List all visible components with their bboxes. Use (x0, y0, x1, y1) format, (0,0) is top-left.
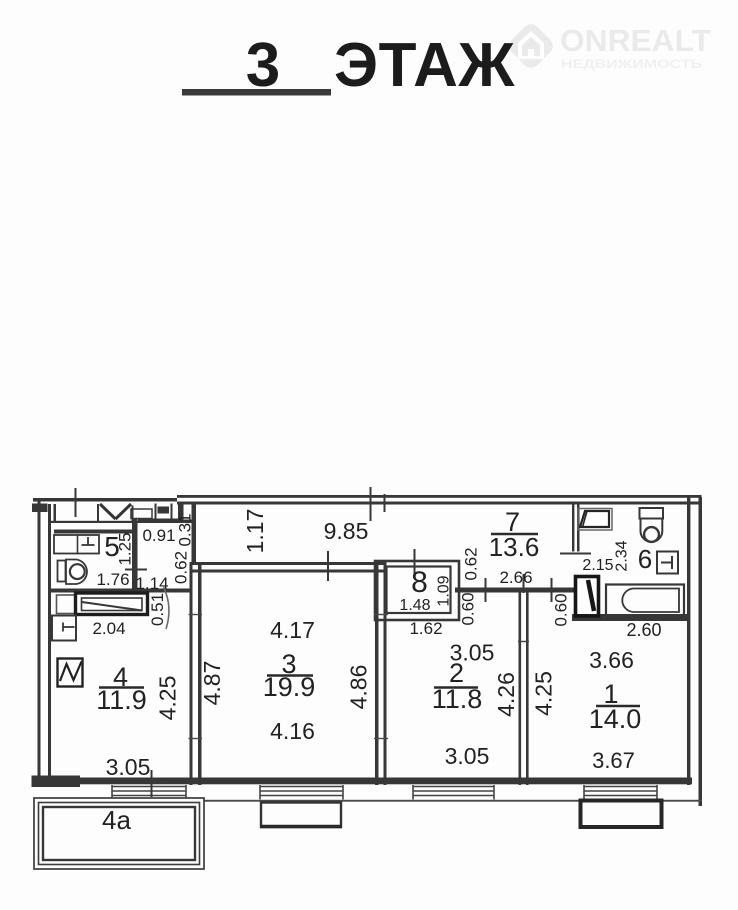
svg-text:8: 8 (411, 566, 428, 599)
svg-text:3.05: 3.05 (445, 743, 490, 769)
svg-text:4.87: 4.87 (199, 661, 225, 706)
svg-text:2.34: 2.34 (614, 540, 631, 571)
svg-text:1.09: 1.09 (436, 575, 453, 606)
svg-text:2.15: 2.15 (582, 557, 613, 574)
svg-text:ЭТАЖ: ЭТАЖ (334, 31, 515, 100)
svg-text:3.05: 3.05 (106, 754, 151, 780)
svg-text:1.62: 1.62 (409, 619, 442, 638)
svg-text:9.85: 9.85 (324, 518, 369, 544)
svg-text:0.60: 0.60 (459, 592, 478, 625)
svg-text:1.76: 1.76 (96, 570, 129, 589)
svg-text:14.0: 14.0 (589, 704, 642, 734)
svg-text:0.60: 0.60 (552, 593, 571, 626)
svg-text:2.60: 2.60 (626, 620, 661, 640)
svg-text:1.17: 1.17 (242, 509, 268, 554)
svg-text:4.25: 4.25 (155, 676, 181, 721)
svg-text:2.66: 2.66 (499, 568, 532, 587)
svg-text:ONREALT: ONREALT (560, 23, 711, 58)
svg-text:4.16: 4.16 (270, 718, 315, 744)
svg-text:4.86: 4.86 (346, 665, 372, 710)
svg-text:НЕДВИЖИМОСТЬ: НЕДВИЖИМОСТЬ (561, 59, 702, 71)
svg-text:13.6: 13.6 (489, 532, 540, 562)
svg-text:1.48: 1.48 (399, 597, 430, 614)
svg-text:4a: 4a (102, 805, 131, 835)
svg-text:4.26: 4.26 (493, 672, 519, 717)
svg-text:0.62: 0.62 (462, 547, 481, 580)
svg-text:1.25: 1.25 (116, 532, 135, 565)
svg-text:4.25: 4.25 (531, 671, 557, 716)
svg-text:0.51: 0.51 (148, 593, 167, 626)
svg-text:6: 6 (638, 544, 652, 574)
svg-text:4.17: 4.17 (270, 617, 315, 643)
svg-text:0.62: 0.62 (172, 551, 191, 584)
svg-text:1.14: 1.14 (135, 574, 168, 593)
svg-text:0.91: 0.91 (142, 526, 175, 545)
svg-text:2.04: 2.04 (92, 619, 125, 638)
svg-text:11.9: 11.9 (96, 685, 147, 715)
svg-text:3.66: 3.66 (589, 647, 634, 673)
svg-text:0.31: 0.31 (176, 513, 195, 546)
svg-text:3.67: 3.67 (592, 748, 635, 773)
